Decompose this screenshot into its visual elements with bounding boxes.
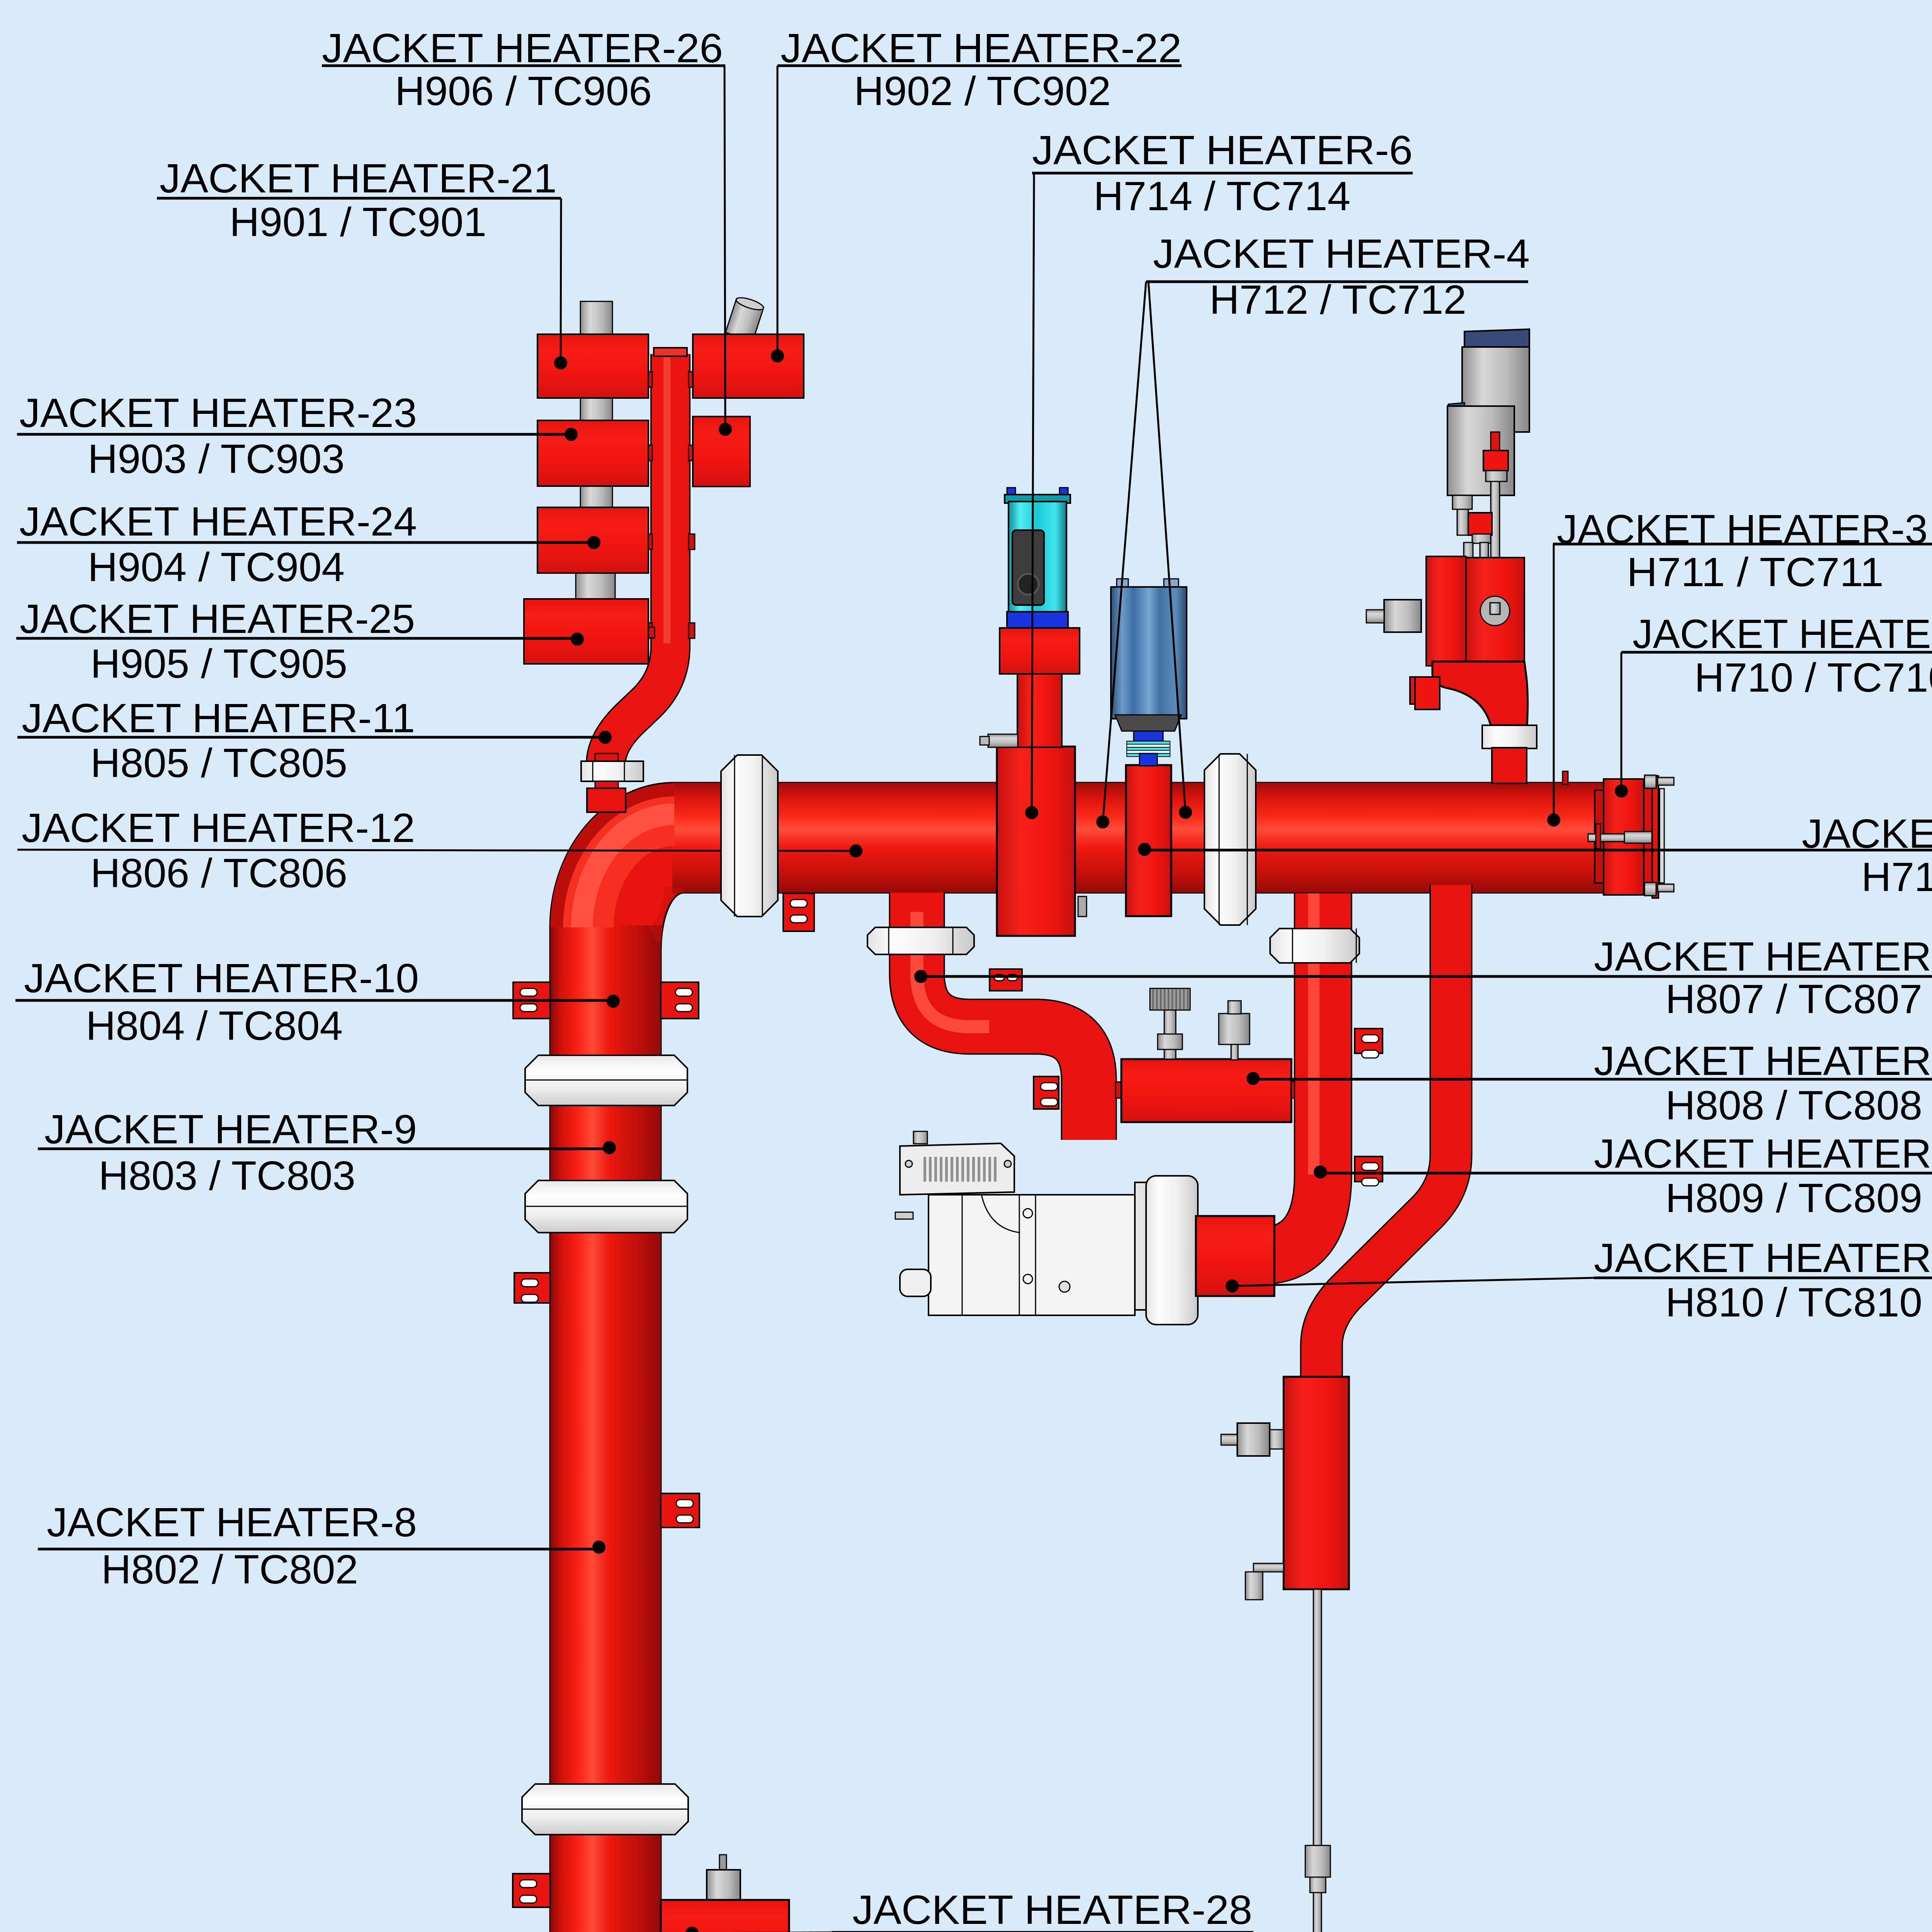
svg-text:H807 / TC807: H807 / TC807 <box>1665 976 1922 1022</box>
svg-text:JACKET HEATER-8: JACKET HEATER-8 <box>47 1500 417 1545</box>
svg-text:JACKET HEATER-2: JACKET HEATER-2 <box>1633 611 1932 657</box>
svg-text:JACKET HEATER-24: JACKET HEATER-24 <box>19 499 417 544</box>
svg-text:H803 / TC803: H803 / TC803 <box>99 1153 355 1199</box>
svg-text:JACKET HEATER-13: JACKET HEATER-13 <box>1594 934 1932 980</box>
svg-text:H808 / TC808: H808 / TC808 <box>1665 1083 1922 1128</box>
svg-text:JACKET HEATER-9: JACKET HEATER-9 <box>44 1107 417 1152</box>
svg-text:JACKET HEATER-21: JACKET HEATER-21 <box>160 156 557 201</box>
svg-text:JACKET HEATER-15: JACKET HEATER-15 <box>1594 1131 1932 1177</box>
svg-text:H710 / TC710: H710 / TC710 <box>1694 655 1932 701</box>
svg-text:JACKET HEATER-11: JACKET HEATER-11 <box>22 696 415 741</box>
svg-text:H903 / TC903: H903 / TC903 <box>88 436 345 482</box>
svg-text:H809 / TC809: H809 / TC809 <box>1665 1175 1922 1221</box>
svg-text:JACKET HEATER-4: JACKET HEATER-4 <box>1153 231 1530 277</box>
svg-text:JACKET HEATER-25: JACKET HEATER-25 <box>20 596 415 642</box>
svg-text:JACKET HEATER-6: JACKET HEATER-6 <box>1032 128 1413 173</box>
svg-text:H711 / TC711: H711 / TC711 <box>1627 549 1884 595</box>
svg-text:JACKET HEATER-3: JACKET HEATER-3 <box>1557 507 1928 552</box>
svg-text:JACKET HEATER-16: JACKET HEATER-16 <box>1594 1235 1932 1281</box>
svg-text:JACKET HEATER-23: JACKET HEATER-23 <box>19 390 417 436</box>
svg-text:H902 / TC902: H902 / TC902 <box>854 68 1111 114</box>
svg-text:JACKET HEATER-10: JACKET HEATER-10 <box>24 956 419 1001</box>
svg-text:H713 / TC713: H713 / TC713 <box>1861 854 1932 900</box>
svg-text:H904 / TC904: H904 / TC904 <box>88 544 345 590</box>
svg-text:H906 / TC906: H906 / TC906 <box>395 68 652 114</box>
svg-text:H712 / TC712: H712 / TC712 <box>1209 277 1466 323</box>
svg-text:JACKET HEATER-22: JACKET HEATER-22 <box>781 26 1182 71</box>
svg-text:H805 / TC805: H805 / TC805 <box>90 740 347 786</box>
svg-text:H714 / TC714: H714 / TC714 <box>1094 173 1350 219</box>
svg-text:JACKET HEATER-12: JACKET HEATER-12 <box>22 805 415 851</box>
svg-text:JACKET HEATER-26: JACKET HEATER-26 <box>322 26 723 71</box>
svg-text:H901 / TC901: H901 / TC901 <box>230 199 486 245</box>
svg-text:JACKET HEATER-14: JACKET HEATER-14 <box>1594 1038 1932 1084</box>
svg-text:H905 / TC905: H905 / TC905 <box>90 641 347 687</box>
svg-text:H804 / TC804: H804 / TC804 <box>86 1003 343 1049</box>
svg-text:JACKET HEATER-28: JACKET HEATER-28 <box>852 1887 1252 1932</box>
svg-text:H810 / TC810: H810 / TC810 <box>1665 1280 1922 1325</box>
svg-text:JACKET HEATER-5: JACKET HEATER-5 <box>1802 811 1932 857</box>
svg-text:H802 / TC802: H802 / TC802 <box>101 1547 358 1592</box>
svg-text:H806 / TC806: H806 / TC806 <box>90 850 347 896</box>
